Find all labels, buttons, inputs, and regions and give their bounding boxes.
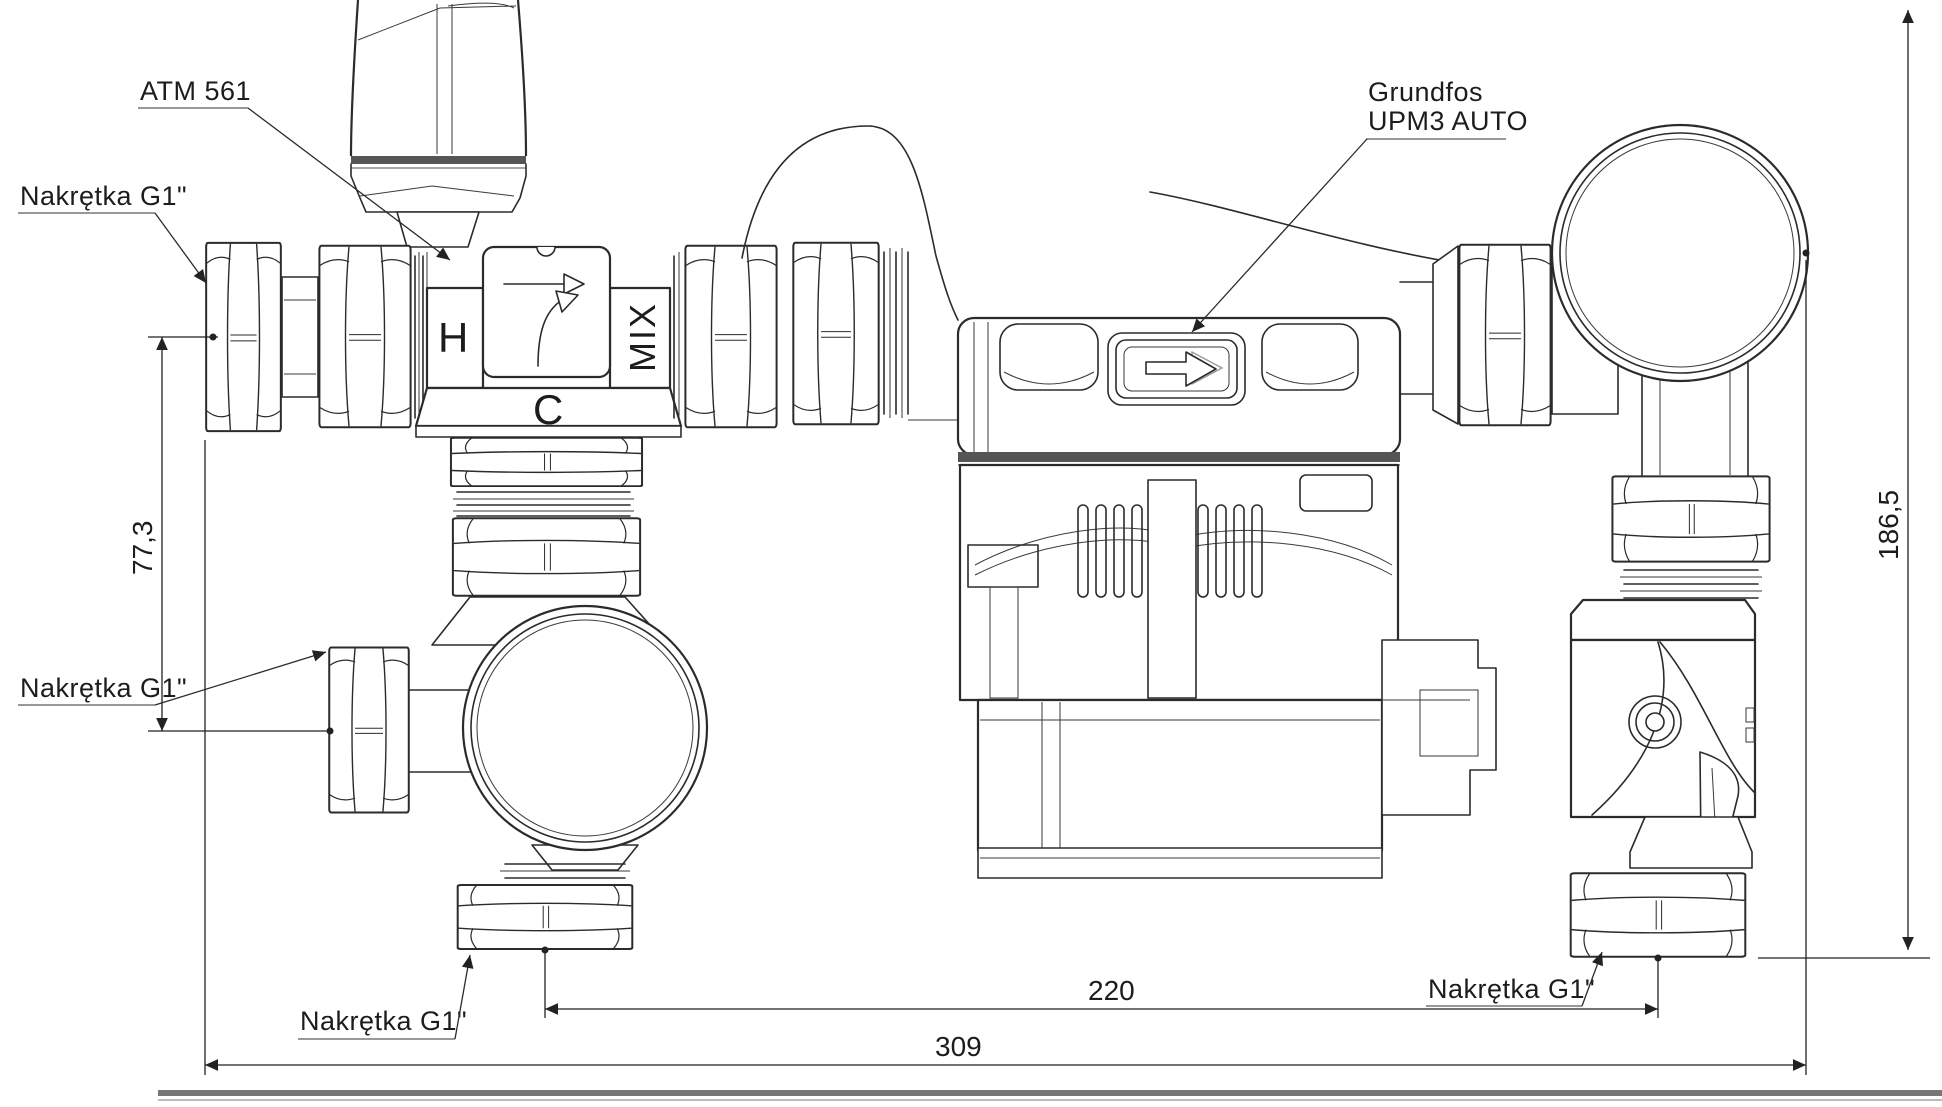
callout-nut-side-left: Nakrętka G1" xyxy=(18,652,326,705)
fitting-hex-body xyxy=(453,518,640,596)
head-grip-band xyxy=(351,156,526,164)
pipe-threads-horizontal xyxy=(884,248,908,418)
hot-port-mark: H xyxy=(438,314,468,361)
dim-axis-offset: 77,3 xyxy=(127,521,158,576)
pump-center-post xyxy=(1148,480,1196,698)
pump-arrow-plate xyxy=(1108,333,1245,405)
pipe-threads-below-valve xyxy=(453,492,634,516)
lower-left-branch xyxy=(329,438,707,949)
dim-pump-group-width: 220 xyxy=(1088,975,1135,1006)
pump-model-label: UPM3 AUTO xyxy=(1368,106,1528,136)
nut-bottom-left xyxy=(458,885,633,949)
thermometer-dial-left xyxy=(463,606,707,850)
valve-model-label: ATM 561 xyxy=(140,76,251,106)
callout-nut-bottom-right: Nakrętka G1" xyxy=(1426,952,1602,1006)
dim-overall-width: 309 xyxy=(935,1031,982,1062)
circulation-pump xyxy=(958,318,1496,878)
mix-port-mark: MIX xyxy=(622,302,663,372)
hex-nut-mid-2 xyxy=(793,243,878,424)
nut-label-bottom-right: Nakrętka G1" xyxy=(1428,974,1595,1004)
tailpiece-left xyxy=(282,277,318,397)
drawing-frame-edge xyxy=(158,1090,1942,1100)
pump-brand-label: Grundfos xyxy=(1368,77,1483,107)
mixing-valve-body: H MIX C xyxy=(416,247,681,437)
union-nut-below-valve xyxy=(451,438,642,487)
nut-label-bottom-left: Nakrętka G1" xyxy=(300,1006,467,1036)
nut-label-side-left: Nakrętka G1" xyxy=(20,673,187,703)
insulation-right-curve xyxy=(1150,192,1457,263)
pump-lower-housing xyxy=(978,700,1382,850)
pump-joint-band xyxy=(958,452,1400,462)
right-return-branch xyxy=(1400,125,1808,957)
cone-tailpiece-right xyxy=(1433,246,1458,424)
side-nut-left xyxy=(329,648,409,813)
technical-drawing-pump-group: H MIX C xyxy=(0,0,1942,1107)
dimension-186-5: 186,5 xyxy=(1758,10,1930,1075)
nut-bottom-right xyxy=(1571,873,1746,956)
valve-front-plate xyxy=(483,247,610,377)
side-port-link xyxy=(405,690,471,772)
thermostatic-head xyxy=(351,0,526,247)
callout-nut-bottom-left: Nakrętka G1" xyxy=(298,955,470,1039)
dim-overall-height: 186,5 xyxy=(1873,490,1904,560)
cone-tailpiece-bottom-right xyxy=(1630,817,1752,868)
union-nut-right-mid xyxy=(1612,476,1769,561)
hex-nut-mid-1 xyxy=(685,246,776,427)
drawing-canvas: H MIX C xyxy=(0,0,1942,1107)
nut-label-top-left: Nakrętka G1" xyxy=(20,181,187,211)
callout-nut-top-left: Nakrętka G1" xyxy=(18,181,206,283)
pump-base-band xyxy=(978,848,1382,878)
pump-terminal-box xyxy=(1382,640,1496,815)
union-nut-right-top xyxy=(1459,245,1550,425)
cold-port-mark: C xyxy=(533,386,563,433)
thermometer-dial-right xyxy=(1552,125,1808,478)
left-supply-chain xyxy=(206,243,427,431)
pipe-threads-right xyxy=(1620,570,1762,598)
hex-nut-left-2 xyxy=(319,246,410,427)
